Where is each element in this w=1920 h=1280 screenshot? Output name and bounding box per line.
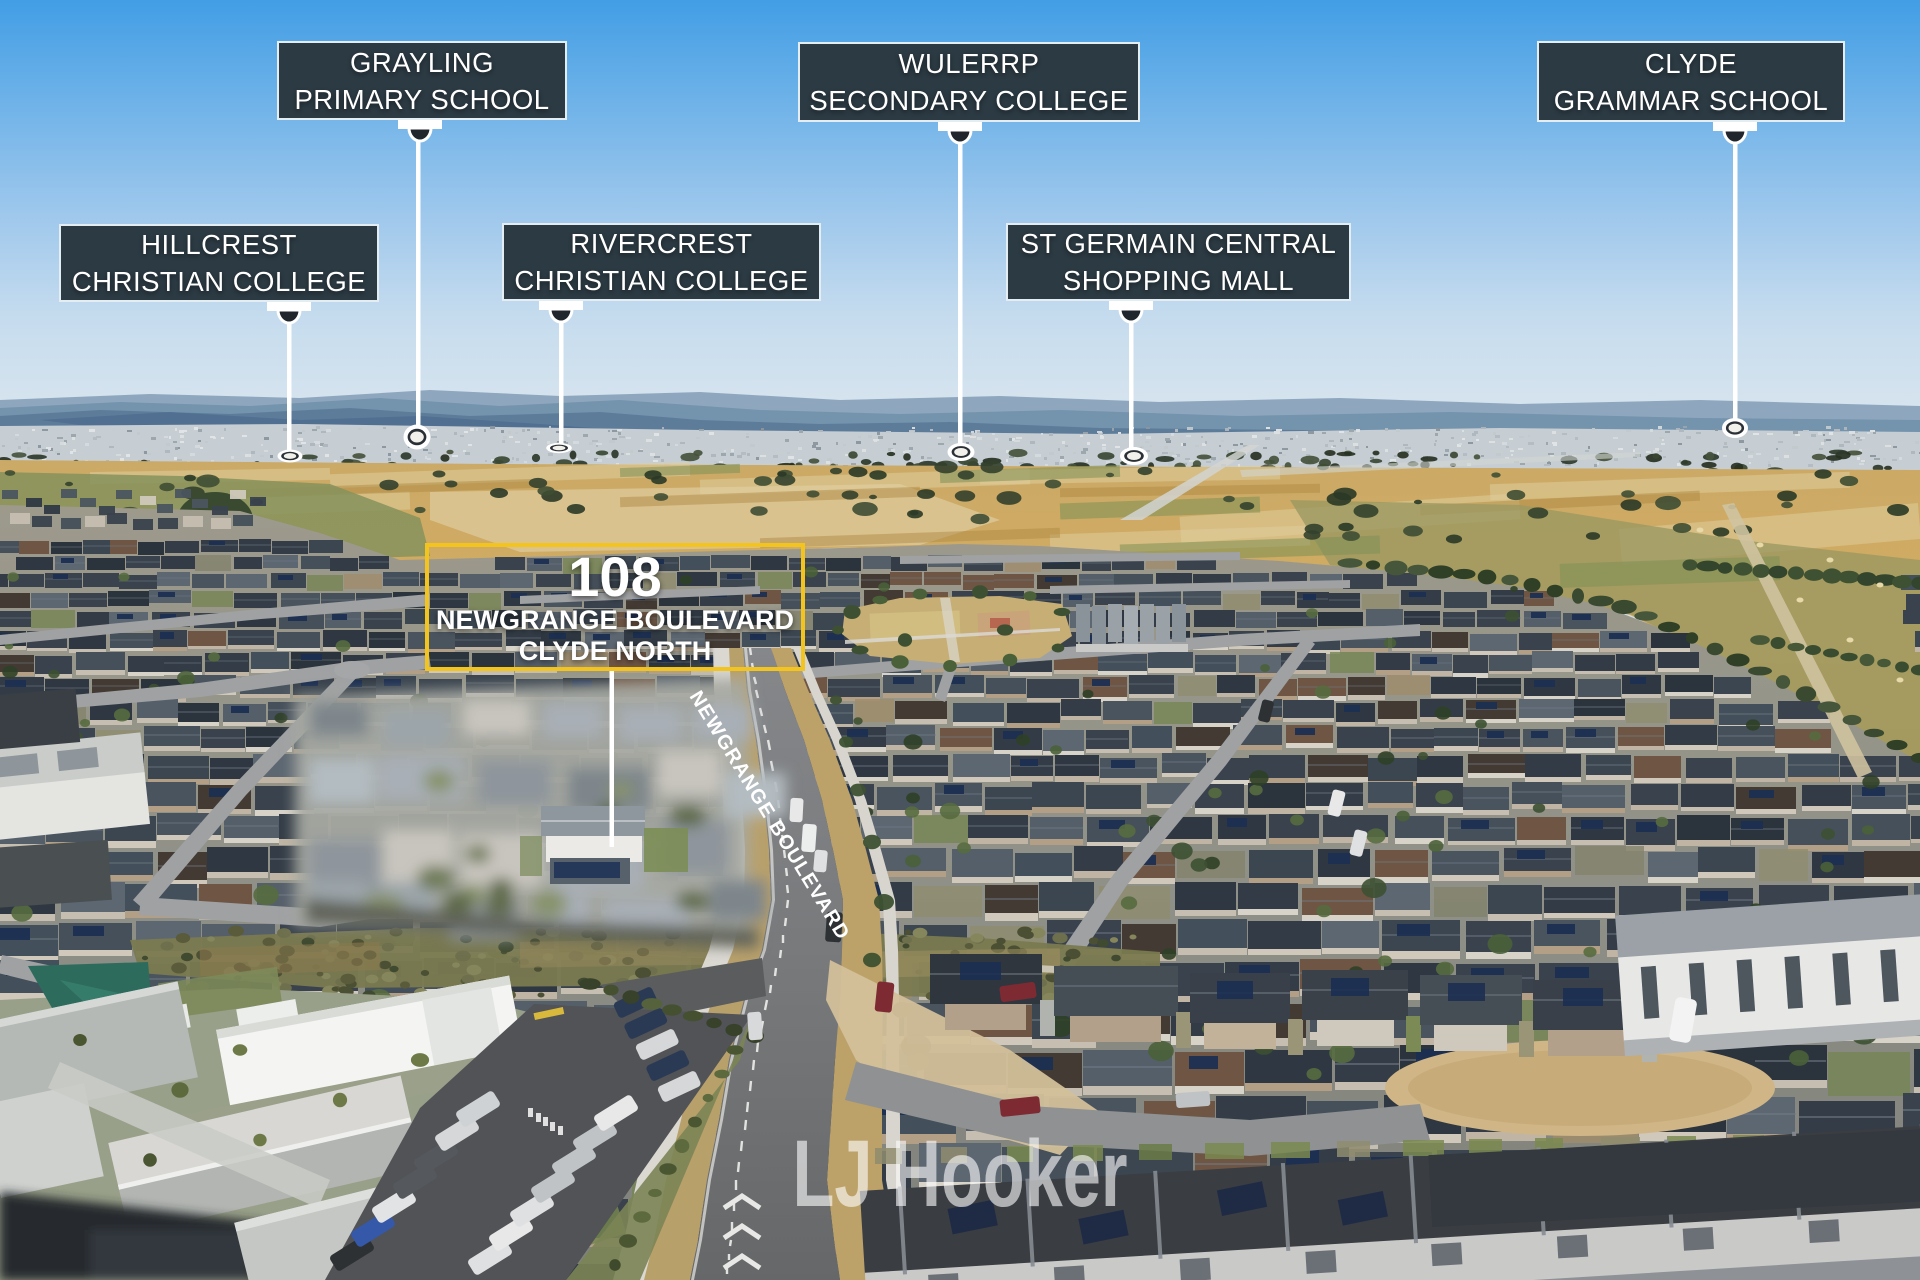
svg-text:LJ Hooker: LJ Hooker [793, 1121, 1128, 1227]
